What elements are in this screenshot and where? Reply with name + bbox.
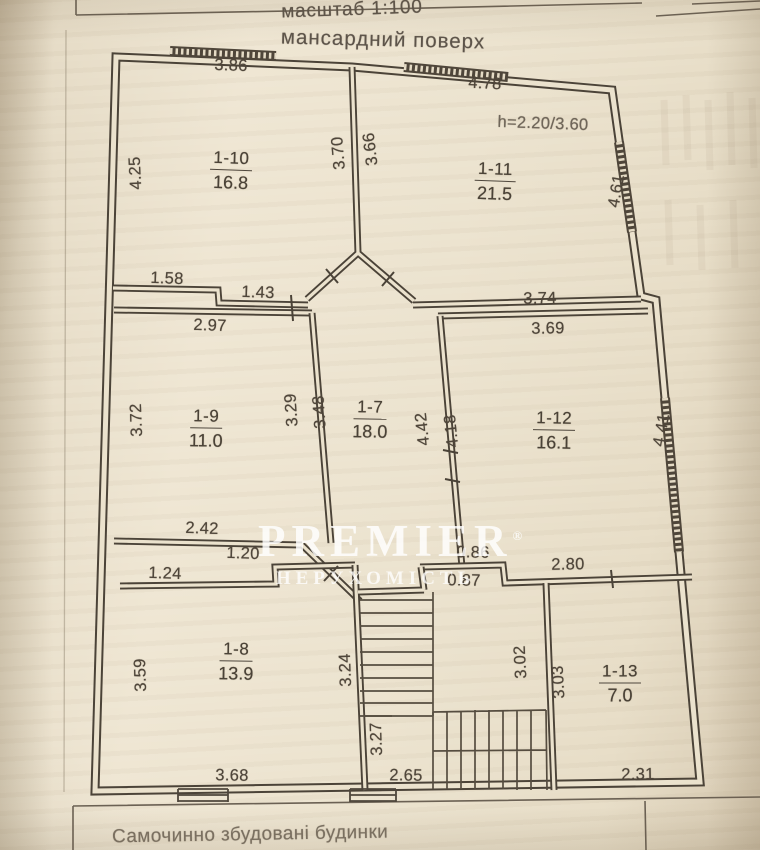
dimension-label: 4.18 <box>441 413 463 448</box>
dimension-label: 3.03 <box>549 665 570 699</box>
page-bleed-marks <box>664 92 754 270</box>
dimension-label: 3.66 <box>360 131 383 166</box>
room-id: 1-10 <box>210 148 253 171</box>
room-1-7: 1-7 18.0 <box>352 397 388 443</box>
dimension-label: 3.27 <box>367 722 387 756</box>
floor-title: мансардний поверх <box>281 26 486 55</box>
dimension-label: 3.72 <box>127 403 147 437</box>
scanned-floor-plan-photo: масштаб 1:100 мансардний поверх 1-10 16.… <box>0 0 760 850</box>
room-1-12: 1-12 16.1 <box>533 408 576 454</box>
dimension-label: 2.31 <box>621 765 655 785</box>
dimension-label: 3.86 <box>214 56 248 76</box>
room-area: 18.0 <box>352 421 387 443</box>
dimension-label: 4.25 <box>126 156 147 190</box>
room-area: 16.8 <box>209 172 252 194</box>
room-area: 11.0 <box>189 430 223 452</box>
dimension-label: 2.97 <box>193 316 227 336</box>
room-area: 7.0 <box>599 686 641 707</box>
dimension-label: 3.70 <box>328 136 350 171</box>
dimension-label: 2.65 <box>389 766 423 786</box>
room-area: 21.5 <box>474 183 515 205</box>
dimension-label: 1.20 <box>226 544 260 564</box>
height-note: h=2.20/3.60 <box>497 113 589 135</box>
room-id: 1-9 <box>190 406 222 429</box>
room-1-13: 1-13 7.0 <box>599 662 641 707</box>
dimension-label: 3.24 <box>336 653 356 687</box>
room-id: 1-13 <box>599 662 641 684</box>
dimension-label: 3.48 <box>309 395 330 430</box>
dimension-label: 2.42 <box>185 519 219 539</box>
dimension-label: 3.68 <box>215 766 249 786</box>
dimension-label: 3.02 <box>511 645 532 679</box>
room-1-11: 1-11 21.5 <box>474 159 516 205</box>
room-id: 1-7 <box>354 397 386 420</box>
room-1-9: 1-9 11.0 <box>189 406 223 452</box>
dimension-label: 0.86 <box>456 543 490 563</box>
dimension-label: 3.69 <box>531 319 565 339</box>
room-1-10: 1-10 16.8 <box>209 148 253 194</box>
room-id: 1-11 <box>475 159 517 182</box>
room-area: 13.9 <box>218 663 253 685</box>
room-1-8: 1-8 13.9 <box>218 639 254 685</box>
dimension-label: 1.58 <box>150 269 184 289</box>
room-id: 1-8 <box>220 639 252 662</box>
room-area: 16.1 <box>533 432 575 454</box>
dimension-label: 4.78 <box>468 74 502 95</box>
dimension-label: 2.80 <box>551 555 585 575</box>
dimension-label: 3.59 <box>131 658 151 692</box>
staircase <box>360 592 547 790</box>
dimension-label: 1.43 <box>241 283 275 303</box>
dimension-label: 1.24 <box>148 564 182 584</box>
dimension-label: 3.74 <box>523 289 557 309</box>
dimension-label: 0.87 <box>447 571 481 591</box>
room-id: 1-12 <box>533 408 575 431</box>
dimension-label: 4.42 <box>412 411 434 446</box>
dimension-label: 3.29 <box>281 393 302 428</box>
